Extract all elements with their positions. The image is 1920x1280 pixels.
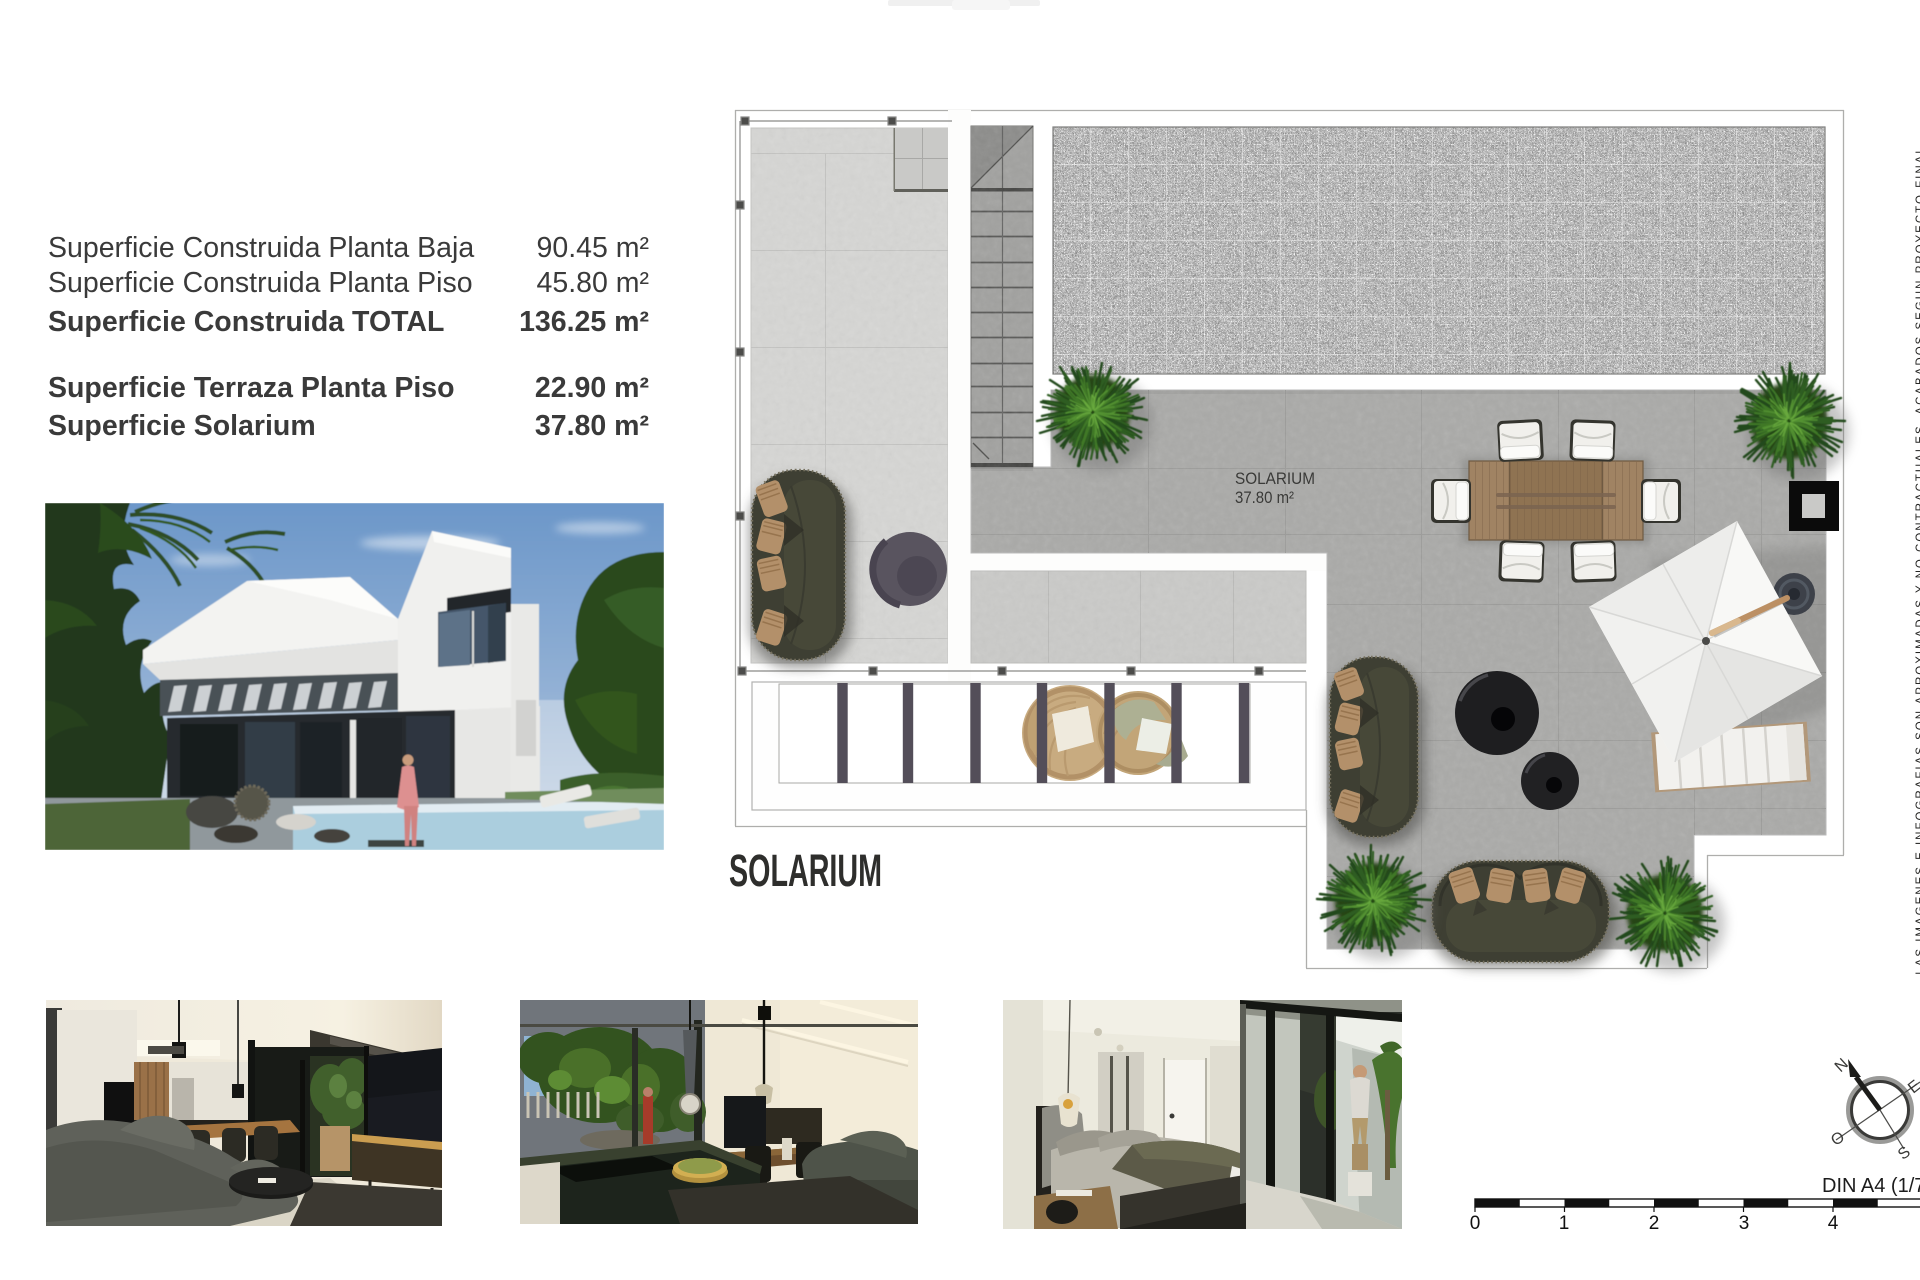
svg-text:3: 3	[1739, 1213, 1750, 1234]
svg-text:90.45 m²: 90.45 m²	[537, 232, 649, 264]
svg-text:O: O	[1828, 1129, 1848, 1150]
svg-text:Superficie Terraza Planta Piso: Superficie Terraza Planta Piso	[48, 372, 455, 404]
svg-text:45.80 m²: 45.80 m²	[537, 267, 649, 299]
svg-text:Superficie Solarium: Superficie Solarium	[48, 410, 316, 442]
svg-text:S: S	[1895, 1144, 1914, 1164]
svg-text:1: 1	[1559, 1213, 1570, 1234]
svg-text:37.80 m²: 37.80 m²	[1235, 488, 1294, 507]
svg-text:SOLARIUM: SOLARIUM	[1235, 469, 1315, 488]
svg-text:4: 4	[1828, 1213, 1839, 1234]
svg-text:136.25 m²: 136.25 m²	[519, 306, 649, 338]
svg-text:SOLARIUM: SOLARIUM	[729, 845, 882, 896]
svg-text:LAS IMAGENES E INFOGRAFIAS SON: LAS IMAGENES E INFOGRAFIAS SON APROXIMAD…	[1915, 145, 1920, 974]
svg-text:Superficie Construida TOTAL: Superficie Construida TOTAL	[48, 306, 444, 338]
svg-text:37.80 m²: 37.80 m²	[535, 410, 649, 442]
svg-text:Superficie Construida Planta P: Superficie Construida Planta Piso	[48, 267, 473, 299]
svg-text:2: 2	[1649, 1213, 1660, 1234]
svg-text:22.90 m²: 22.90 m²	[535, 372, 649, 404]
svg-text:Superficie Construida Planta B: Superficie Construida Planta Baja	[48, 232, 474, 264]
svg-text:0: 0	[1470, 1213, 1481, 1234]
svg-text:DIN A4 (1/75: DIN A4 (1/75	[1822, 1175, 1920, 1197]
svg-text:N: N	[1832, 1055, 1852, 1075]
